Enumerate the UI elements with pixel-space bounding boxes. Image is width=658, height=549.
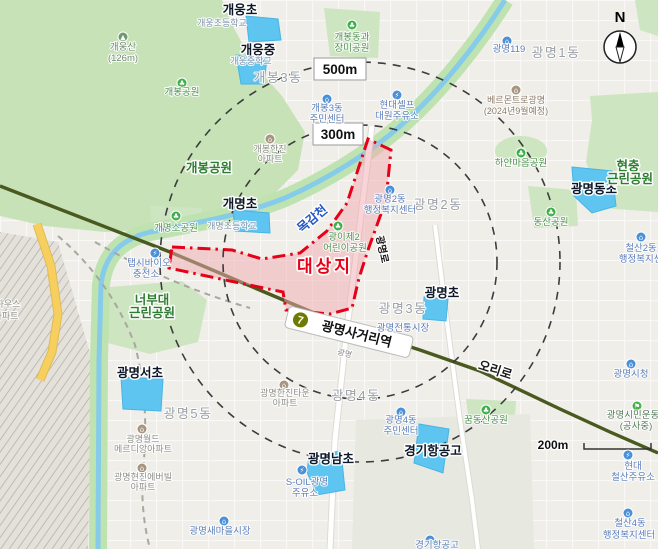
map-label: 어린이공원 <box>323 243 367 254</box>
map-label: 개봉3동 <box>311 103 343 114</box>
svg-text:♣: ♣ <box>548 209 554 217</box>
map-label: 광명119 <box>493 43 526 55</box>
map-label: 개봉3동 <box>253 70 302 85</box>
construction-site-icon: ⌂ <box>511 85 521 95</box>
scale-bar-label: 200m <box>538 438 569 452</box>
park-icon: ♣ <box>333 221 343 231</box>
map-label: 행정복지센터 <box>603 529 655 541</box>
map-label: 광명월드 <box>126 433 159 444</box>
svg-text:⌂: ⌂ <box>140 426 144 434</box>
svg-text:♣: ♣ <box>518 150 524 158</box>
map-label: 근린공원 <box>607 171 653 186</box>
map-label: (공사중) <box>620 421 653 432</box>
map-label: 광명2동 <box>413 197 462 212</box>
compass-n-label: N <box>615 9 626 26</box>
map-label: (126m) <box>108 53 138 64</box>
map-label: 하얀마음공원 <box>495 157 547 169</box>
svg-text:⌂: ⌂ <box>639 234 643 242</box>
park-icon: ♣ <box>481 405 491 415</box>
map-label: 개웅중학교 <box>230 56 271 66</box>
label-gwangmyeong-elementary: 광명초 <box>425 285 460 300</box>
map-label: 개명초등학교 <box>207 221 257 231</box>
map-label: 현대셀프 <box>380 100 415 111</box>
map-label: 베르몬트로광명 <box>487 94 545 105</box>
city-hall-icon: ⌂ <box>626 359 636 369</box>
svg-text:⌂: ⌂ <box>626 510 630 518</box>
label-hyeonchung-park: 현충 <box>616 158 640 173</box>
map-label: 철산4동 <box>614 518 646 529</box>
apartment-icon: ⌂ <box>265 134 275 144</box>
svg-text:⚡: ⚡ <box>300 467 305 475</box>
community-center-icon: ⌂ <box>636 232 646 242</box>
radius-label-500m: 500m <box>314 58 366 80</box>
svg-text:♣: ♣ <box>173 213 179 221</box>
park-icon: ♣ <box>171 211 181 221</box>
map-label: 아파트 <box>258 154 283 164</box>
school-zone-gwangmyeongseo-elem <box>121 377 163 411</box>
community-center-icon: ⌂ <box>623 508 633 518</box>
map-label: 개봉한진 <box>253 144 286 154</box>
label-neobudae-park: 너부대 <box>135 292 170 307</box>
mountain-icon: ▲ <box>118 32 128 42</box>
map-label: 철산2동 <box>625 243 657 254</box>
svg-text:⌂: ⌂ <box>514 87 518 95</box>
map-label: 주민센터 <box>384 426 419 437</box>
map-label: 광명시청 <box>614 368 649 380</box>
map-label: 광명새마을시장 <box>189 525 250 537</box>
map-label: 아파트 <box>131 482 156 492</box>
radius-label-300m: 300m <box>313 123 363 145</box>
map-label: 동산공원 <box>534 217 569 228</box>
map-label: 광명1동 <box>531 45 580 60</box>
map-label: 개웅초등학교 <box>197 18 247 28</box>
map-label: 광명현진에버빌 <box>114 471 172 482</box>
map-label: 하우스 <box>0 299 20 309</box>
svg-text:♣: ♣ <box>483 407 489 415</box>
apartment-icon: ⌂ <box>137 424 147 434</box>
map-label: 아파트 <box>0 311 18 321</box>
map-label: (2024년9월예정) <box>484 105 548 116</box>
svg-text:⚡: ⚡ <box>395 92 400 100</box>
label-gaeung-middle: 개웅중 <box>241 42 276 57</box>
map-label: 철산주유소 <box>611 472 655 483</box>
map-label: 광명시민운동 <box>607 409 658 421</box>
map-canvas: 500m 300m 200m 7 광명사거리역 N 대상지 ♣♣♣♣♣♣♣▲⌂⌂… <box>0 0 658 549</box>
gas-station-icon: ⚡ <box>297 465 307 475</box>
map-label: S-OIL광명 <box>286 476 328 488</box>
svg-text:⚡: ⚡ <box>626 452 631 460</box>
map-label: 메르디앙아파트 <box>114 443 172 454</box>
park-icon: ♣ <box>516 148 526 158</box>
map-label: 광명4동 <box>385 414 417 426</box>
label-gwangmyeongseo-elementary: 광명서초 <box>117 365 164 380</box>
gas-station-icon: ⚡ <box>623 450 633 460</box>
map-label: 탭시바이오 <box>127 257 171 269</box>
map-label: 광명5동 <box>163 406 212 421</box>
svg-text:⌂: ⌂ <box>268 136 272 144</box>
map-label: 대원주유소 <box>375 111 419 122</box>
map-label: 광이제2 <box>328 231 360 243</box>
map-label: 아파트 <box>273 398 298 408</box>
map-label: 주유소 <box>292 488 318 499</box>
map-label: 개봉공원 <box>165 87 200 98</box>
map-label: 개명소공원 <box>154 223 198 234</box>
school-zone-gaeung-elem <box>246 16 281 42</box>
map-label: 충전소 <box>133 269 159 280</box>
label-gwangmyeongnam-elementary: 광명남초 <box>308 451 355 466</box>
map-label: 광명3동 <box>378 301 427 316</box>
map-label: 행정복지센터 <box>364 204 416 216</box>
label-gaeung-mountain: 개웅산 <box>110 42 136 53</box>
svg-text:⌂: ⌂ <box>222 518 226 526</box>
map-label: 주민센터 <box>310 114 345 125</box>
map-label: 행정복지센터 <box>619 253 658 265</box>
svg-text:♣: ♣ <box>349 22 355 30</box>
map-label: 경기항공고 <box>415 539 459 549</box>
radius-500m-text: 500m <box>323 62 358 77</box>
map-label: 꿈동산공원 <box>464 415 508 426</box>
map-label: 광명전통시장 <box>377 322 430 334</box>
park-icon: ♣ <box>347 20 357 30</box>
svg-text:▲: ▲ <box>120 34 126 42</box>
radius-300m-text: 300m <box>321 127 356 142</box>
map-label: 광명4동 <box>331 388 380 403</box>
svg-text:♣: ♣ <box>335 223 341 231</box>
site-label: 대상지 <box>297 257 353 276</box>
svg-text:⚡: ⚡ <box>153 250 158 258</box>
site-area-map: 500m 300m 200m 7 광명사거리역 N 대상지 ♣♣♣♣♣♣♣▲⌂⌂… <box>0 0 658 549</box>
label-gaeung-elementary: 개웅초 <box>223 2 258 17</box>
svg-text:⌂: ⌂ <box>629 361 633 369</box>
map-label: 장미공원 <box>335 43 370 54</box>
map-label: 근린공원 <box>129 305 175 320</box>
map-label: 광명한진타운 <box>260 387 310 398</box>
label-gaebong-park: 개봉공원 <box>186 161 232 175</box>
label-gaemyeong-elementary: 개명초 <box>223 196 258 211</box>
gas-station-icon: ⚡ <box>392 90 402 100</box>
park-icon: ♣ <box>546 207 556 217</box>
charging-station-icon: ⚡ <box>150 248 160 258</box>
map-label: 개봉동과 <box>335 32 370 43</box>
map-label: 현대 <box>624 461 641 472</box>
market-icon: ⌂ <box>219 516 229 526</box>
label-gyeonggi-aviation-hs: 경기항공고 <box>404 443 462 458</box>
map-label: 광명2동 <box>374 193 406 205</box>
